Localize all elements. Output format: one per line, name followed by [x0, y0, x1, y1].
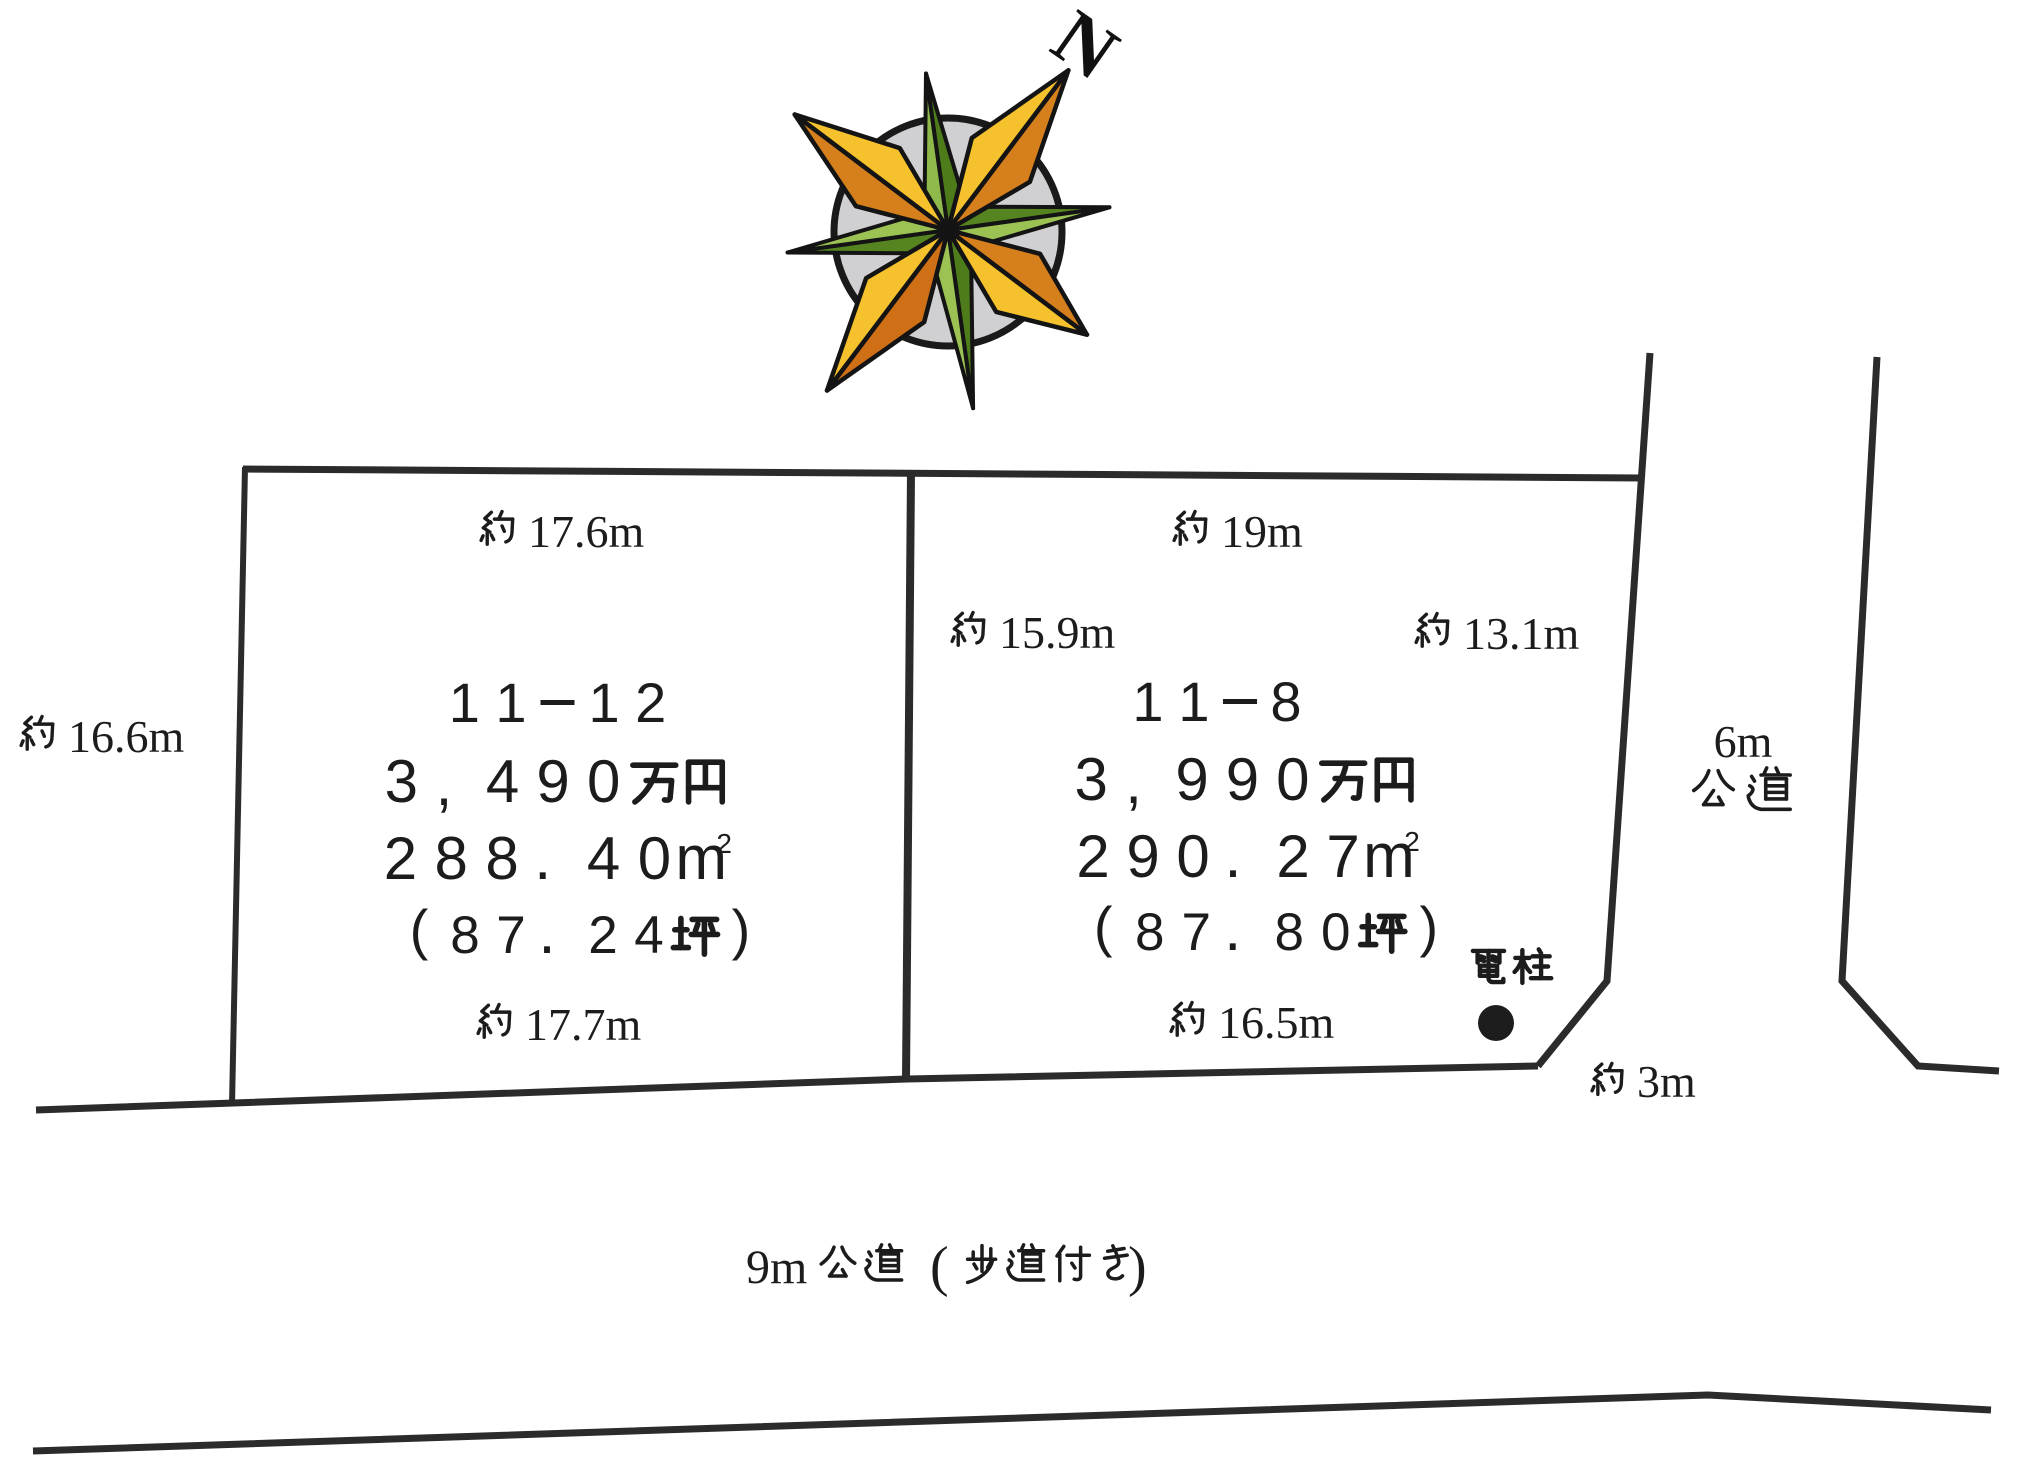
svg-text:3: 3: [385, 748, 418, 815]
svg-text:3: 3: [1075, 746, 1108, 813]
svg-text:17.7m: 17.7m: [525, 999, 642, 1050]
svg-text:9: 9: [536, 748, 569, 815]
svg-text:16.6m: 16.6m: [68, 711, 185, 762]
svg-text:1: 1: [495, 671, 526, 734]
svg-text:0: 0: [638, 825, 671, 892]
svg-text:.: .: [538, 898, 555, 967]
svg-text:2: 2: [716, 828, 732, 859]
svg-text:3m: 3m: [1637, 1056, 1696, 1107]
svg-text:16.5m: 16.5m: [1218, 997, 1335, 1048]
svg-text:8: 8: [450, 906, 479, 965]
svg-text:,: ,: [436, 751, 453, 818]
svg-text:2: 2: [1276, 823, 1309, 890]
svg-text:19m: 19m: [1221, 506, 1303, 557]
svg-text:1: 1: [1132, 670, 1163, 733]
svg-text:.: .: [1224, 822, 1241, 891]
svg-text:0: 0: [1321, 903, 1350, 962]
svg-text:2: 2: [588, 906, 617, 965]
svg-text:): ): [1419, 895, 1438, 958]
svg-text:(: (: [930, 1236, 949, 1298]
svg-text:4: 4: [486, 748, 519, 815]
svg-text:.: .: [1224, 895, 1241, 964]
svg-text:9: 9: [1226, 746, 1259, 813]
svg-text:7: 7: [1326, 823, 1359, 890]
svg-text:13.1m: 13.1m: [1463, 608, 1580, 659]
svg-text:8: 8: [435, 825, 468, 892]
svg-text:1: 1: [589, 671, 620, 734]
svg-text:0: 0: [1176, 823, 1209, 890]
svg-text:6m: 6m: [1714, 716, 1773, 767]
svg-text:,: ,: [1125, 749, 1142, 816]
svg-text:17.6m: 17.6m: [528, 506, 645, 557]
svg-text:8: 8: [1135, 903, 1164, 962]
svg-text:8: 8: [1274, 903, 1303, 962]
svg-text:15.9m: 15.9m: [999, 607, 1116, 658]
svg-text:9: 9: [1126, 823, 1159, 890]
svg-text:(: (: [1094, 895, 1113, 958]
svg-text:4: 4: [587, 825, 620, 892]
svg-text:1: 1: [449, 671, 480, 734]
svg-text:7: 7: [1181, 903, 1210, 962]
svg-text:.: .: [534, 824, 551, 893]
svg-text:9m: 9m: [746, 1241, 807, 1294]
svg-text:4: 4: [634, 906, 663, 965]
svg-text:): ): [732, 898, 751, 961]
svg-text:2: 2: [1076, 823, 1109, 890]
svg-text:2: 2: [635, 671, 666, 734]
svg-text:0: 0: [587, 748, 620, 815]
svg-text:1: 1: [1178, 670, 1209, 733]
svg-text:0: 0: [1276, 746, 1309, 813]
svg-text:2: 2: [384, 825, 417, 892]
svg-text:7: 7: [496, 906, 525, 965]
svg-text:8: 8: [1270, 670, 1301, 733]
svg-text:8: 8: [485, 825, 518, 892]
svg-text:9: 9: [1175, 746, 1208, 813]
svg-text:): ): [1128, 1236, 1147, 1298]
svg-text:2: 2: [1404, 826, 1420, 857]
svg-text:(: (: [410, 898, 429, 961]
